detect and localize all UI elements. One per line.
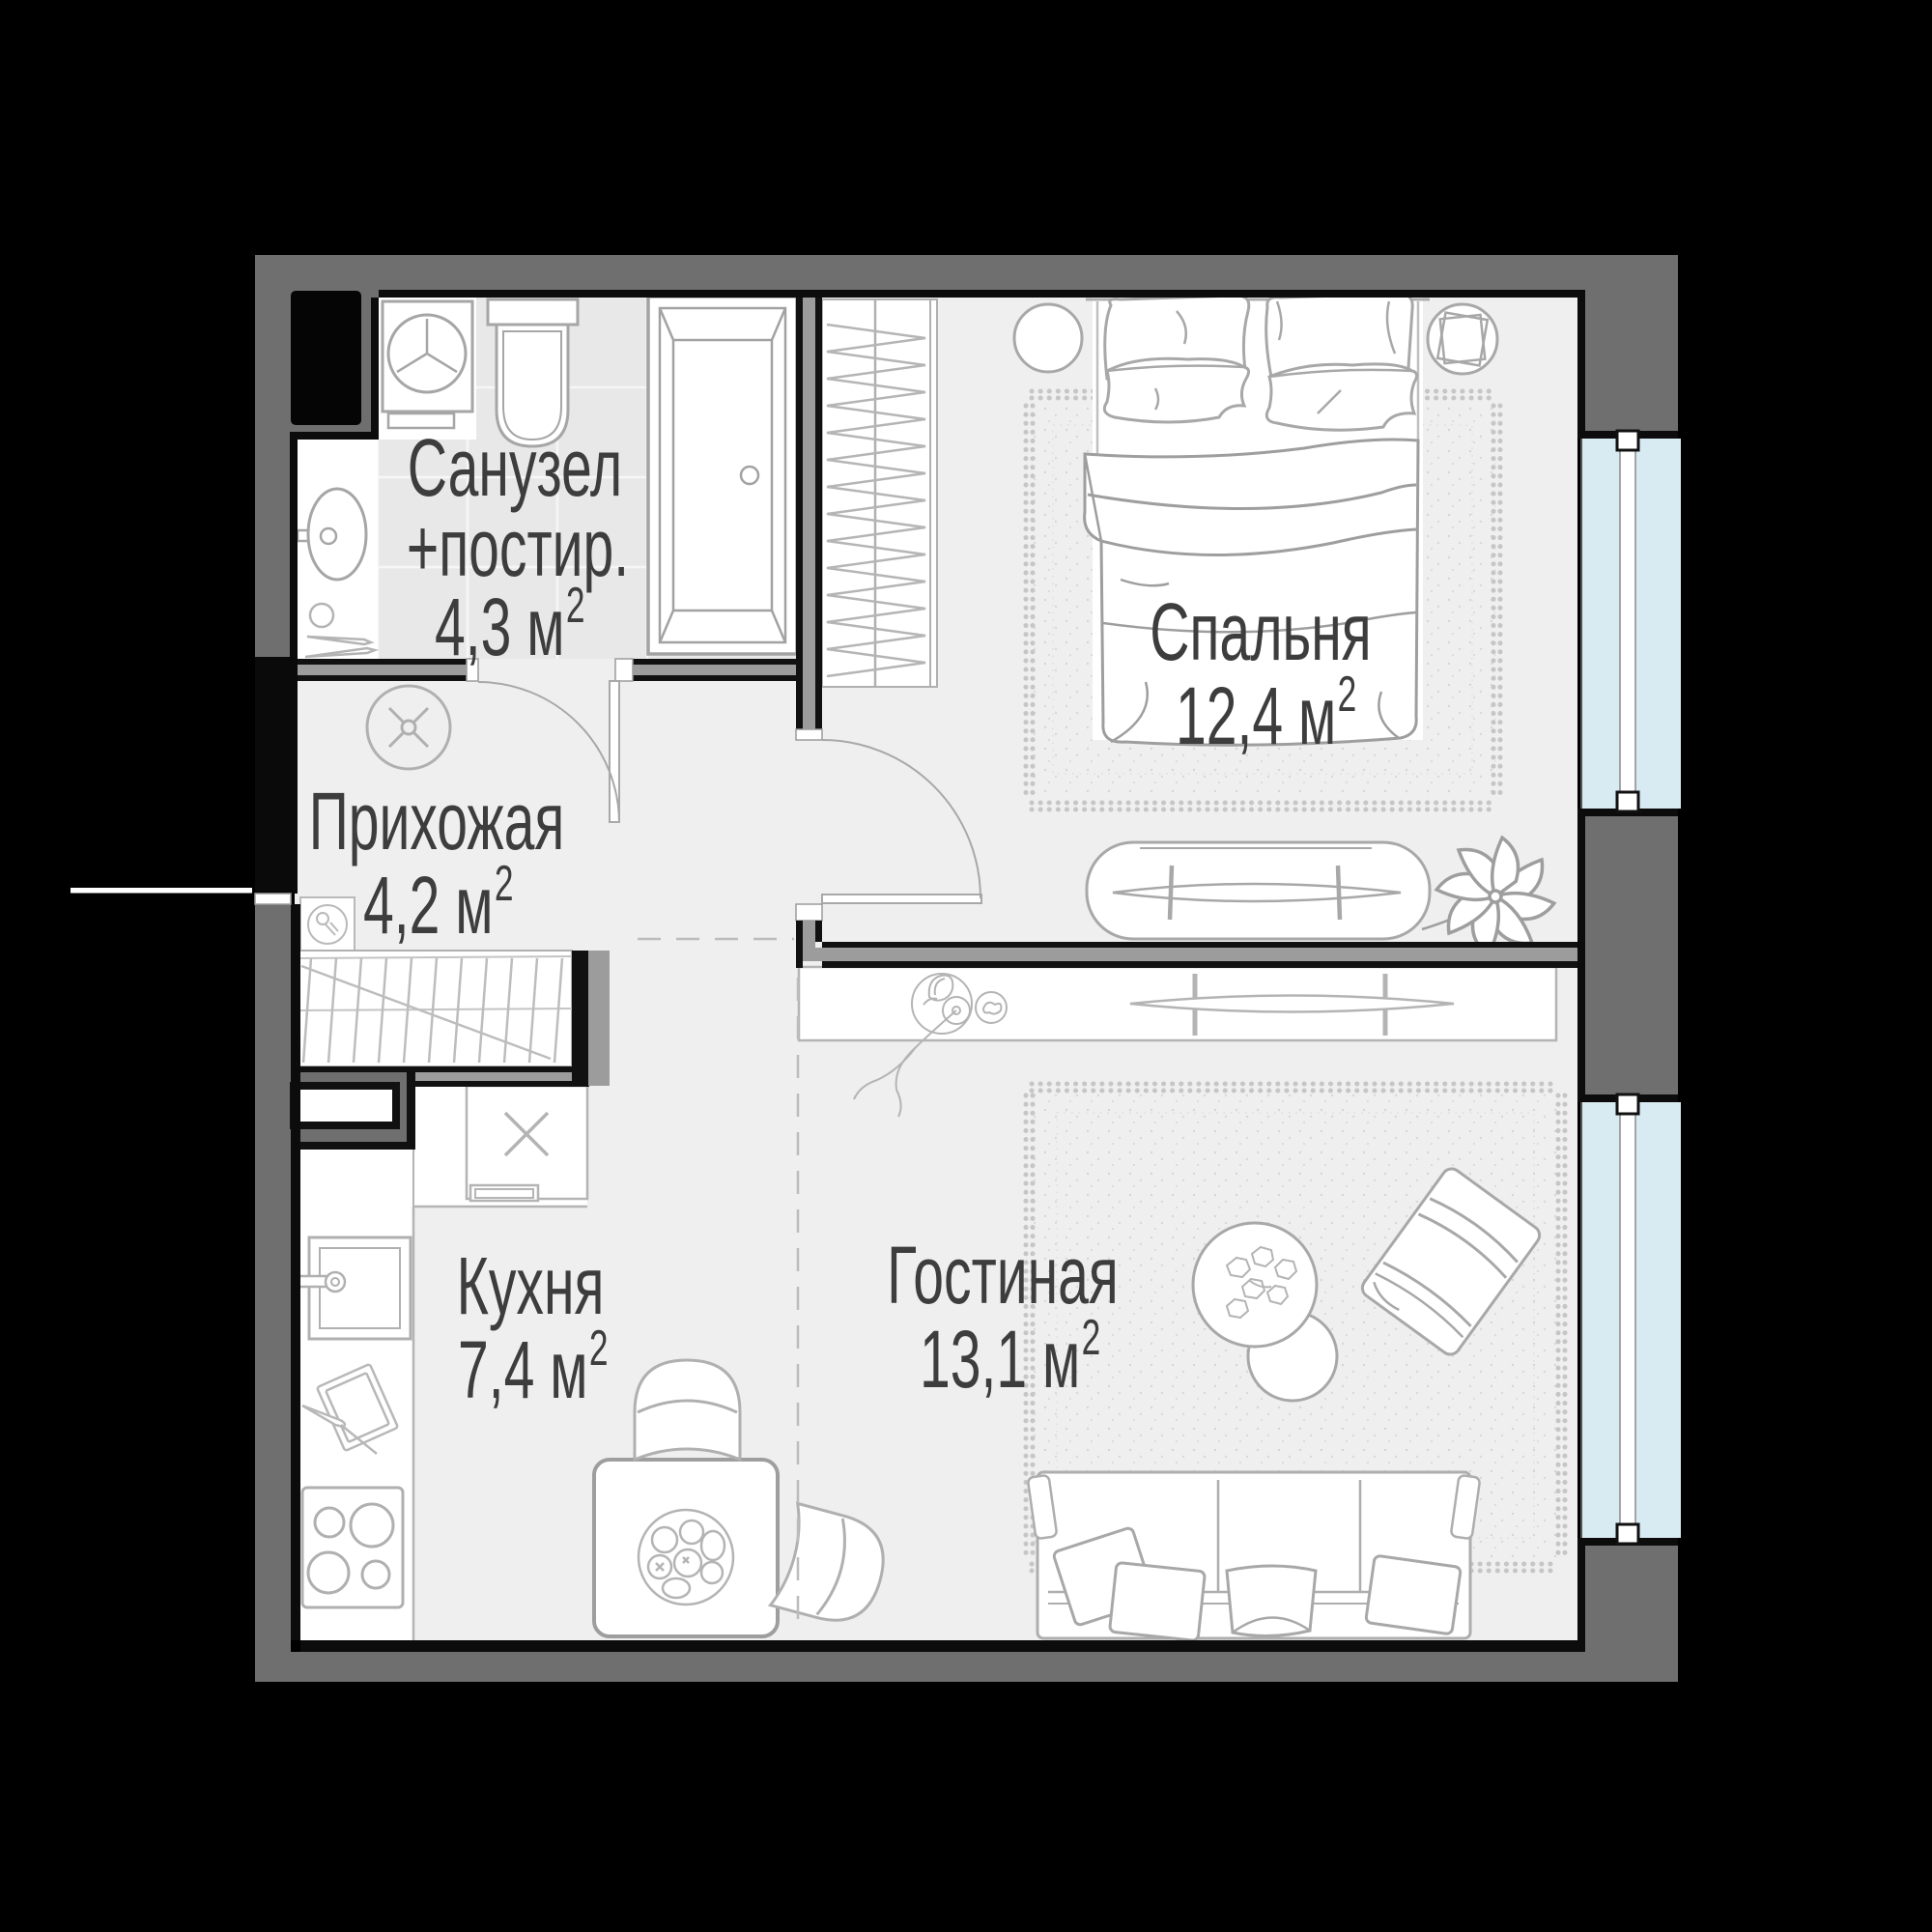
svg-text:Гостиная: Гостиная (887, 1231, 1119, 1321)
svg-text:4,3 м2: 4,3 м2 (435, 578, 585, 672)
svg-text:+постир.: +постир. (407, 503, 629, 594)
svg-text:Спальня: Спальня (1150, 587, 1371, 678)
svg-text:Кухня: Кухня (457, 1241, 605, 1332)
svg-text:Прихожая: Прихожая (309, 777, 565, 867)
svg-text:7,4 м2: 7,4 м2 (458, 1321, 609, 1415)
svg-text:13,1 м2: 13,1 м2 (920, 1310, 1100, 1405)
svg-text:Санузел: Санузел (408, 423, 622, 514)
svg-text:12,4 м2: 12,4 м2 (1176, 667, 1356, 761)
svg-text:4,2 м2: 4,2 м2 (363, 856, 514, 951)
